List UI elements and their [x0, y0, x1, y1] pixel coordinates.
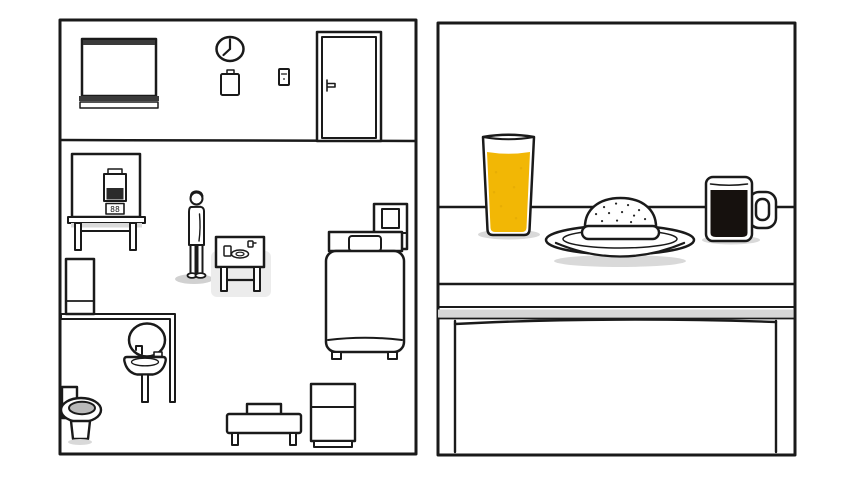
storage-cabinet[interactable] [311, 384, 355, 447]
side-table-leg-left [221, 267, 227, 291]
bed-foot-left [332, 352, 341, 359]
coffee-fill [711, 190, 748, 237]
apartment-panel: 88 [58, 18, 418, 456]
cabinet-base [314, 441, 352, 447]
nightstand-picture [382, 209, 399, 228]
cabinet-body [311, 384, 355, 441]
blind-top-bar [83, 40, 155, 45]
wall-notepad[interactable] [221, 70, 239, 95]
mini-plate [232, 250, 249, 258]
toilet-seat [69, 402, 95, 414]
man-head [191, 193, 203, 205]
room-door[interactable] [317, 32, 381, 141]
couch-leg-right [290, 433, 296, 445]
mini-coffee-mug [248, 241, 253, 247]
game-screen: 88 [0, 0, 853, 480]
bed-foot-right [388, 352, 397, 359]
notepad-sheet [221, 74, 239, 95]
table-trim-strip [438, 310, 793, 318]
switch-dot [283, 78, 285, 80]
window-sill [80, 102, 158, 108]
mini-juice-glass [224, 246, 231, 256]
machine-display: 88 [110, 205, 120, 214]
bed-with-pillow[interactable] [326, 232, 404, 359]
closeup-panel [436, 21, 798, 459]
table-leg-right [130, 223, 136, 250]
man-shoe-front [196, 273, 206, 278]
light-switch[interactable] [279, 69, 289, 85]
toilet-base [71, 421, 90, 439]
carton-label [107, 188, 124, 200]
food-machine[interactable]: 88 [72, 154, 140, 217]
mug-handle-hole [756, 199, 769, 220]
switch-plate [279, 69, 289, 85]
bun-bottom [582, 226, 659, 239]
window-blind[interactable] [79, 39, 159, 108]
bed-pillow [349, 236, 381, 251]
couch-seat [227, 414, 301, 433]
orange-juice-glass[interactable] [478, 135, 540, 240]
sink-pedestal [142, 375, 148, 403]
bathroom-cabinet[interactable] [66, 259, 94, 314]
wall-clock[interactable] [217, 37, 244, 61]
side-table-leg-right [254, 267, 260, 291]
breakfast-side-table[interactable] [211, 237, 271, 297]
blind-bottom-bar [79, 96, 159, 101]
table-leg-left [75, 223, 81, 250]
couch-leg-left [232, 433, 238, 445]
man-leg-back [191, 245, 196, 274]
man-torso [189, 207, 204, 245]
toilet-shadow [68, 439, 92, 445]
man-leg-front [198, 245, 203, 274]
window-frame [82, 39, 156, 96]
